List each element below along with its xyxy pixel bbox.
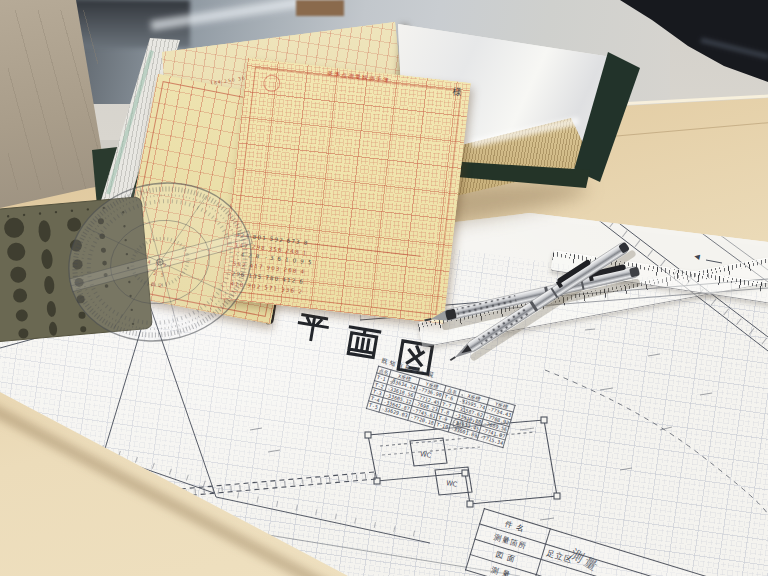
pencils-layer bbox=[0, 0, 768, 576]
photo-canvas: { "plan": { "title": "現況平面図", "coord_tab… bbox=[0, 0, 768, 576]
mechanical-pencil-2 bbox=[445, 237, 630, 365]
